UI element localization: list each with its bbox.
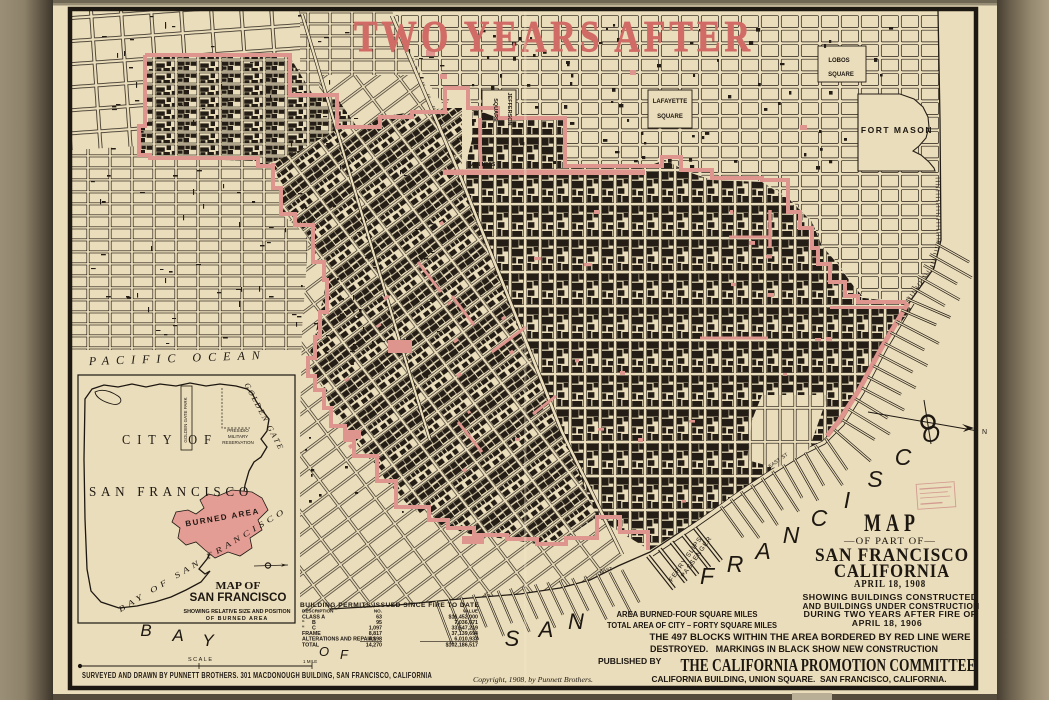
svg-text:A: A: [171, 626, 183, 645]
svg-text:PUBLISHED BY: PUBLISHED BY: [598, 656, 662, 666]
svg-text:LOBOS: LOBOS: [828, 58, 849, 64]
svg-text:SQUARE: SQUARE: [492, 98, 498, 122]
svg-text:FORT MASON: FORT MASON: [861, 125, 933, 135]
svg-text:MAP: MAP: [864, 510, 920, 537]
svg-text:A: A: [537, 617, 554, 642]
svg-text:S: S: [867, 466, 883, 492]
svg-text:JEFFERSON: JEFFERSON: [506, 92, 512, 125]
svg-text:LAFAYETTE: LAFAYETTE: [653, 99, 687, 105]
svg-text:N: N: [982, 429, 987, 436]
svg-text:VALUE: VALUE: [463, 609, 478, 614]
svg-text:N: N: [783, 522, 800, 548]
svg-text:TOTAL AREA OF CITY – FORTY SQU: TOTAL AREA OF CITY – FORTY SQUARE MILES: [607, 621, 778, 630]
svg-text:F: F: [340, 647, 349, 662]
svg-text:O: O: [922, 421, 940, 447]
svg-text:SURVEYED AND DRAWN BY PUNNETT: SURVEYED AND DRAWN BY PUNNETT BROTHERS. …: [82, 671, 432, 680]
svg-text:DESCRIPTION: DESCRIPTION: [302, 609, 334, 614]
svg-text:SAN FRANCISCO: SAN FRANCISCO: [89, 485, 253, 500]
svg-text:APRIL 18, 1906: APRIL 18, 1906: [852, 618, 923, 628]
svg-text:SAN FRANCISCO: SAN FRANCISCO: [190, 590, 287, 604]
svg-text:SHOWING RELATIVE SIZE AND POSI: SHOWING RELATIVE SIZE AND POSITION: [184, 609, 291, 615]
svg-text:SQUARE: SQUARE: [657, 114, 683, 120]
svg-text:THE 497 BLOCKS WITHIN THE ARE: THE 497 BLOCKS WITHIN THE AREA BORDERED …: [650, 632, 971, 643]
svg-text:N: N: [568, 609, 584, 634]
svg-text:S: S: [505, 626, 520, 651]
svg-text:CALIFORNIA BUILDING, UNION SQU: CALIFORNIA BUILDING, UNION SQUARE. SAN F…: [652, 674, 947, 684]
svg-text:O: O: [319, 644, 329, 659]
svg-text:AREA BURNED·FOUR SQUARE MILES: AREA BURNED·FOUR SQUARE MILES: [617, 610, 759, 619]
svg-text:NO.: NO.: [374, 609, 382, 614]
svg-text:MILITARY: MILITARY: [228, 434, 248, 439]
svg-text:SQUARE: SQUARE: [828, 72, 854, 78]
svg-text:$102,186,517: $102,186,517: [446, 643, 478, 649]
svg-text:14,270: 14,270: [366, 643, 382, 649]
svg-text:VAN NESS: VAN NESS: [470, 162, 496, 168]
svg-text:F: F: [700, 563, 716, 589]
svg-text:R: R: [727, 551, 744, 577]
svg-text:DESTROYED. MARKINGS IN BLACK: DESTROYED. MARKINGS IN BLACK SHOW NEW CO…: [650, 644, 938, 655]
svg-text:APRIL 18, 1908: APRIL 18, 1908: [854, 578, 926, 590]
svg-text:RESERVATION: RESERVATION: [222, 440, 254, 445]
svg-text:A: A: [753, 538, 770, 564]
svg-text:B: B: [140, 621, 151, 640]
svg-text:TWO YEARS AFTER: TWO YEARS AFTER: [354, 12, 754, 61]
svg-text:1 MILE: 1 MILE: [303, 659, 317, 664]
svg-text:CITY OF: CITY OF: [122, 433, 218, 448]
svg-text:C: C: [811, 505, 828, 531]
svg-text:THE CALIFORNIA PROMOTION COMMI: THE CALIFORNIA PROMOTION COMMITTEE: [681, 655, 976, 675]
svg-text:Copyright, 1908, by Punnett Br: Copyright, 1908, by Punnett Brothers.: [473, 675, 593, 684]
svg-text:SCALE: SCALE: [188, 657, 214, 663]
svg-text:C: C: [895, 444, 912, 470]
svg-text:GOLDEN GATE PARK: GOLDEN GATE PARK: [183, 397, 188, 442]
svg-text:PRESIDIO: PRESIDIO: [227, 428, 249, 433]
svg-text:TOTAL: TOTAL: [302, 643, 320, 649]
svg-text:OF BURNED AREA: OF BURNED AREA: [206, 616, 269, 622]
svg-text:I: I: [844, 487, 851, 513]
svg-text:Y: Y: [202, 631, 215, 650]
